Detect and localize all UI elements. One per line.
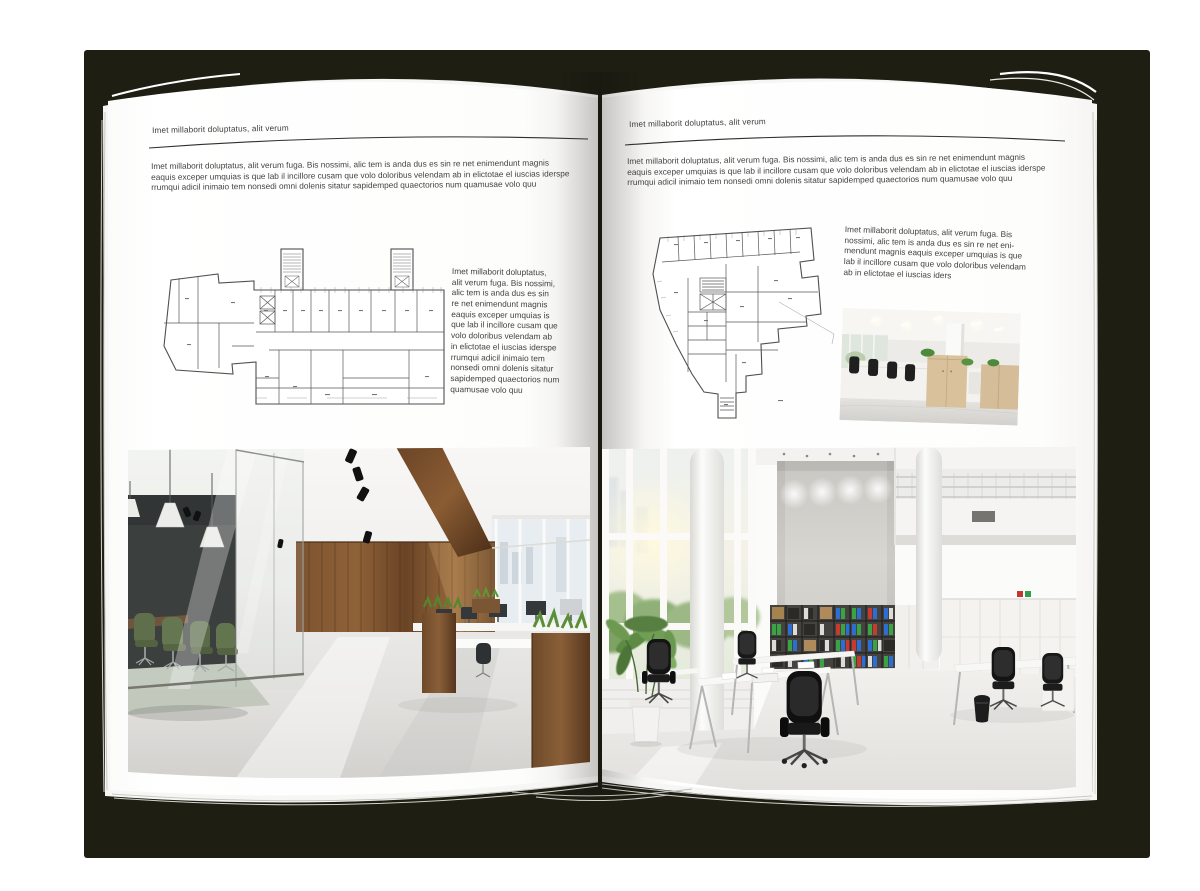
office-photo-small: [839, 308, 1020, 426]
office-photo-atrium: [602, 447, 1076, 790]
column: [916, 447, 942, 662]
glass-partition: [128, 447, 304, 689]
floor-plan-left: [157, 228, 447, 418]
left-page-intro: Imet millaborit doluptatus, alit verum f…: [151, 157, 570, 192]
brochure-mockup: Imet millaborit doluptatus, alit verum I…: [0, 0, 1200, 891]
column: [690, 447, 724, 747]
right-page-intro: Imet millaborit doluptatus, alit verum f…: [627, 152, 1046, 188]
floor-plan-right: [648, 222, 838, 422]
left-page-sidenote: Imet millaborit doluptatus, alit verum f…: [450, 266, 582, 396]
right-page-sidenote: Imet millaborit doluptatus, alit verum f…: [843, 224, 1050, 284]
office-photo-loft: [128, 447, 590, 778]
window-wall: [602, 447, 760, 747]
